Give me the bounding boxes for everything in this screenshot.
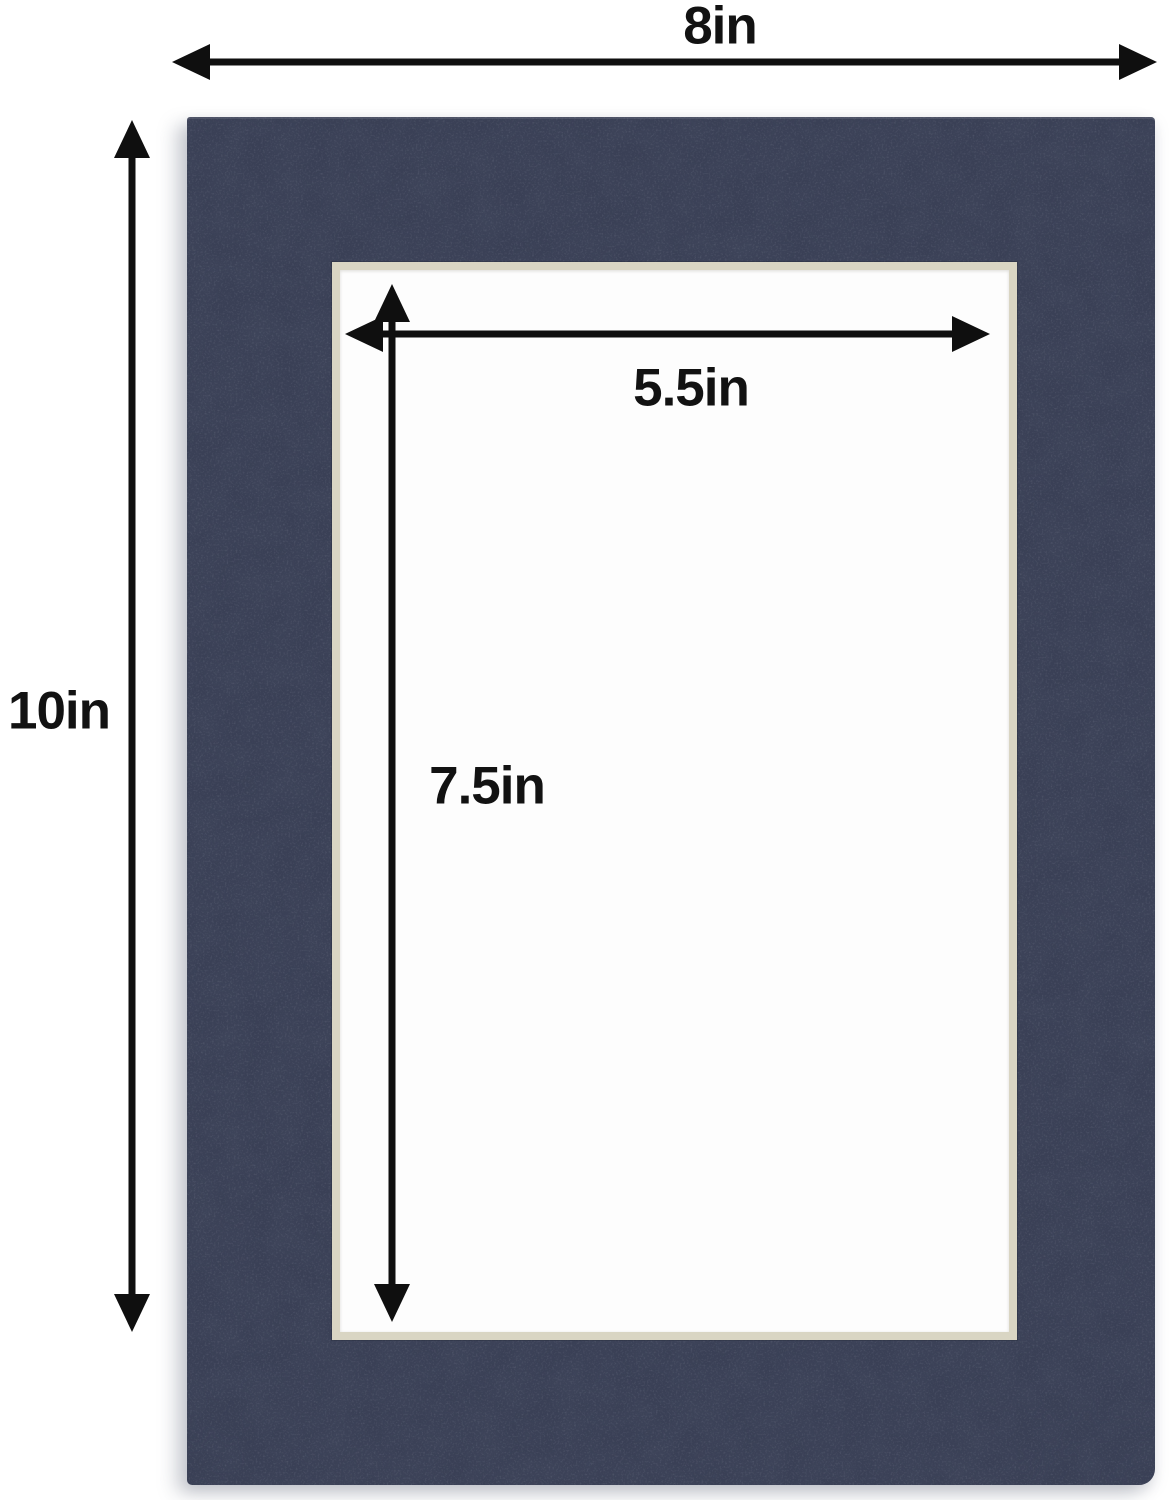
outer-height-label: 10in xyxy=(8,681,110,742)
arrowhead-up-icon xyxy=(114,120,150,158)
opening-height-label: 7.5in xyxy=(429,756,545,817)
outer-height-arrow xyxy=(114,120,150,1332)
product-diagram: 8in 10in 5.5in 7.5in xyxy=(0,0,1170,1500)
opening-width-label: 5.5in xyxy=(633,358,749,419)
outer-width-label: 8in xyxy=(683,0,757,57)
outer-width-arrow xyxy=(172,44,1157,80)
mat-board xyxy=(187,117,1155,1485)
arrowhead-down-icon xyxy=(114,1294,150,1332)
arrowhead-right-icon xyxy=(1119,44,1157,80)
arrowhead-left-icon xyxy=(172,44,210,80)
